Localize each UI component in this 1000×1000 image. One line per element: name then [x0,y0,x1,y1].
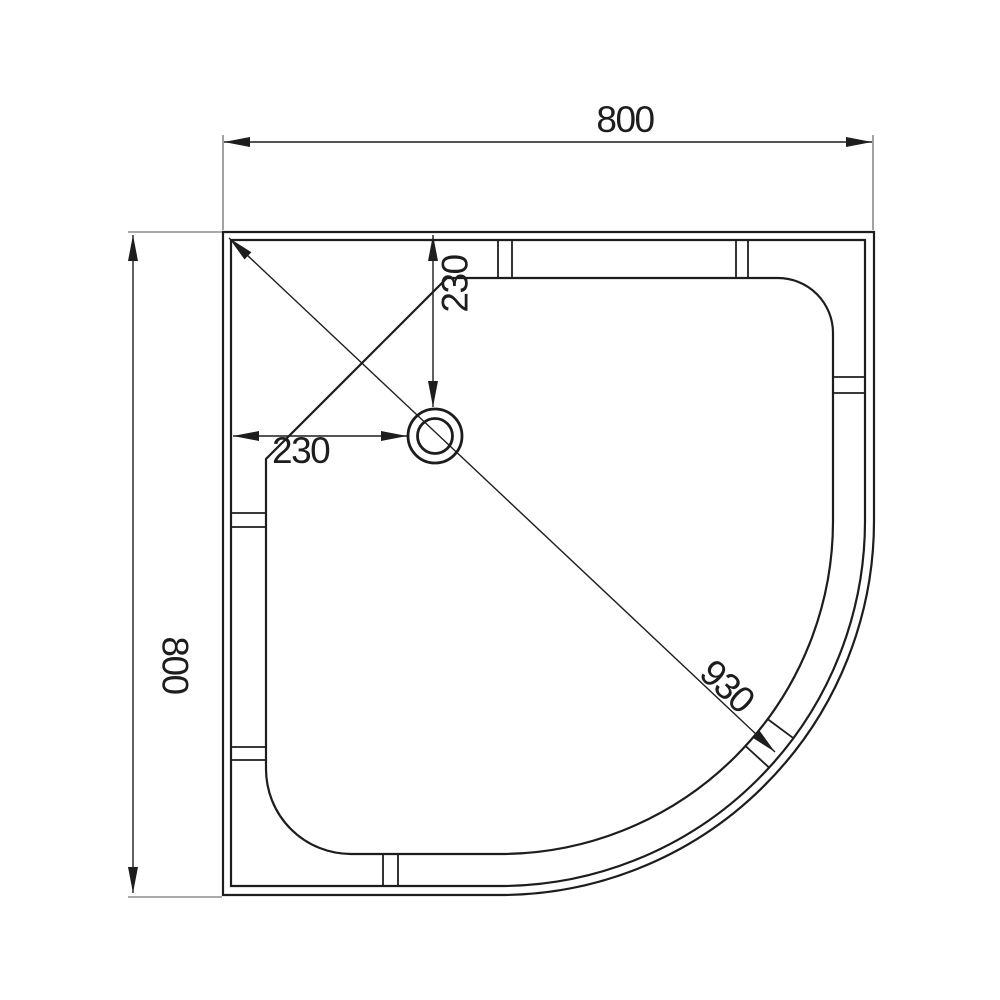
dim-label-drain-from-top: 230 [435,254,476,312]
drawing-canvas: 930 800 800 2 [0,0,1000,1000]
arrowhead-drain-left [233,431,259,441]
drain [408,409,462,463]
tray-rim-inner-edge [231,240,865,886]
arrowhead-left-bottom [128,867,138,893]
dim-label-diagonal: 930 [692,651,762,721]
shower-tray-technical-drawing: 930 800 800 2 [0,0,1000,1000]
rim-segment-dividers [231,240,865,886]
dim-label-top-width: 800 [596,99,654,140]
arrowhead-top-left [224,137,250,147]
arrowhead-left-top [128,235,138,261]
rim-divider-curve-1 [768,719,794,738]
tray-bowl-edge [266,278,833,854]
tray-outlines [223,232,874,895]
drain-inner-circle [418,419,453,454]
dimension-diagonal-930: 930 [229,238,775,752]
dim-label-drain-from-left: 230 [272,430,330,471]
dimension-top-800: 800 [223,99,873,230]
dimension-left-800: 800 [128,232,222,897]
arrowhead-top-right [846,137,872,147]
dimension-drain-vertical-230: 230 [428,235,476,407]
arrowhead-drain-bottom [428,381,438,407]
arrowhead-drain-right [381,431,407,441]
dim-line-diagonal [229,238,775,752]
rim-divider-curve-2 [746,746,770,768]
tray-outer-edge [223,232,874,895]
dimension-drain-horizontal-230: 230 [233,430,407,471]
dim-label-left-height: 800 [155,636,196,694]
